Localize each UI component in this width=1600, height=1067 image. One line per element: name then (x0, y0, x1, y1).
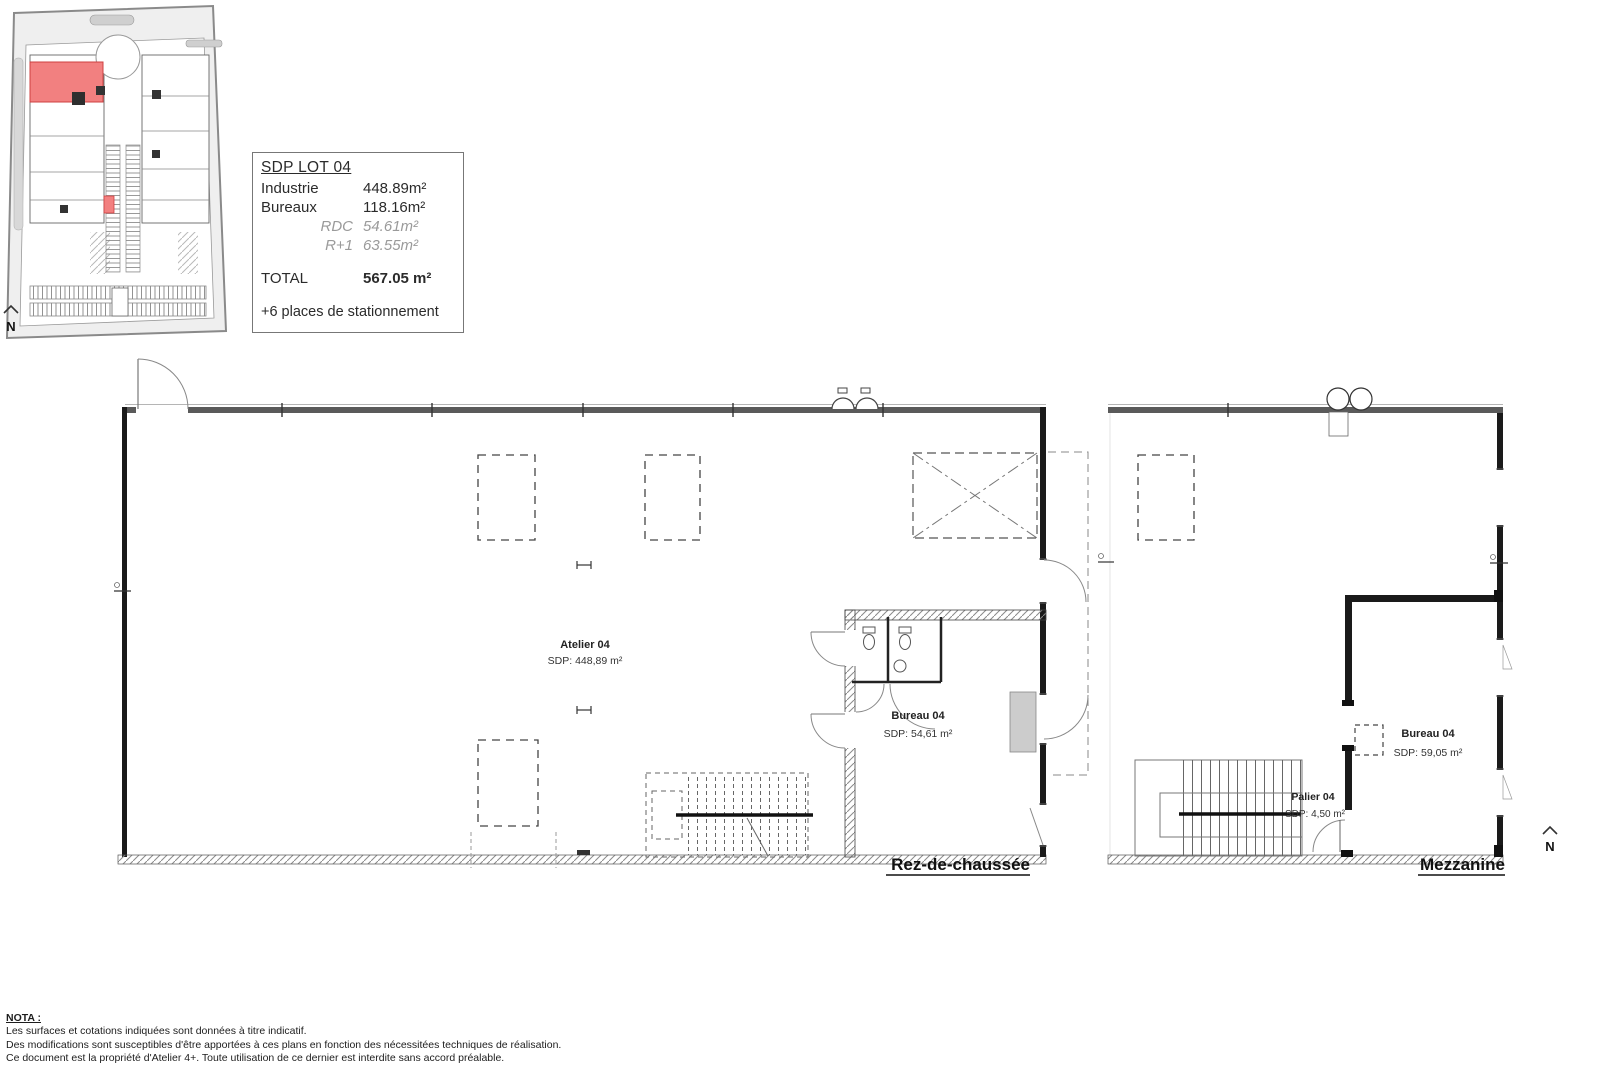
palier-name: Palier 04 (1291, 791, 1334, 803)
summary-row: RDC 54.61m² (261, 217, 455, 236)
mezz-bureau-area: SDP: 59,05 m² (1394, 747, 1463, 759)
north-label-site: N (6, 319, 15, 334)
toilet-icon (899, 627, 911, 650)
nota-line: Ce document est la propriété d'Atelier 4… (6, 1052, 561, 1065)
row-label: Industrie (261, 179, 363, 198)
row-value: 63.55m² (363, 236, 455, 255)
mezzanine-title: Mezzanine (1420, 855, 1505, 874)
sink-icon (894, 660, 906, 672)
floorplan-drawing: N (0, 0, 1600, 1067)
surface-summary-box: SDP LOT 04 Industrie 448.89m² Bureaux 11… (252, 152, 464, 333)
nota-block: NOTA : Les surfaces et cotations indiqué… (6, 1012, 561, 1066)
atelier-area: SDP: 448,89 m² (548, 655, 623, 667)
palier-area: SDP: 4,50 m² (1285, 809, 1346, 820)
equipment-box (1010, 692, 1036, 752)
nota-line: Des modifications sont susceptibles d'êt… (6, 1039, 561, 1052)
rdc-title: Rez-de-chaussée (891, 855, 1030, 874)
rdc-plan: Atelier 04 SDP: 448,89 m² Bureau 04 SDP:… (114, 359, 1088, 875)
site-key-plan: N (4, 6, 226, 338)
entrance-door (136, 359, 188, 414)
mezz-staircase (1135, 760, 1302, 856)
total-value: 567.05 m² (363, 269, 455, 288)
nota-heading: NOTA : (6, 1012, 561, 1025)
rdc-bureau-name: Bureau 04 (891, 710, 945, 722)
mezz-bureau-name: Bureau 04 (1401, 728, 1455, 740)
row-label: RDC (261, 217, 363, 236)
nota-line: Les surfaces et cotations indiquées sont… (6, 1025, 561, 1038)
right-wall-doors (1030, 559, 1088, 846)
top-wall-doors (832, 388, 878, 409)
atelier-name: Atelier 04 (560, 639, 610, 651)
toilet-icon (863, 627, 875, 650)
rdc-bureau-area: SDP: 54,61 m² (884, 728, 953, 740)
mezzanine-plan: Bureau 04 SDP: 59,05 m² Palier 04 SDP: 4… (1098, 388, 1557, 875)
row-value: 448.89m² (363, 179, 455, 198)
summary-row: R+1 63.55m² (261, 236, 455, 255)
row-value: 54.61m² (363, 217, 455, 236)
rdc-staircase (646, 773, 813, 857)
total-label: TOTAL (261, 269, 363, 288)
joint-marker (577, 561, 591, 569)
row-value: 118.16m² (363, 198, 455, 217)
north-label-plans: N (1545, 839, 1554, 854)
summary-total-row: TOTAL 567.05 m² (261, 269, 455, 288)
canopy-outline (913, 453, 1037, 538)
summary-row: Industrie 448.89m² (261, 179, 455, 198)
row-label: Bureaux (261, 198, 363, 217)
summary-title: SDP LOT 04 (261, 158, 455, 177)
joint-marker (577, 706, 591, 714)
north-arrow-plans: N (1543, 827, 1557, 854)
summary-row: Bureaux 118.16m² (261, 198, 455, 217)
row-label: R+1 (261, 236, 363, 255)
parking-note: +6 places de stationnement (261, 303, 455, 322)
